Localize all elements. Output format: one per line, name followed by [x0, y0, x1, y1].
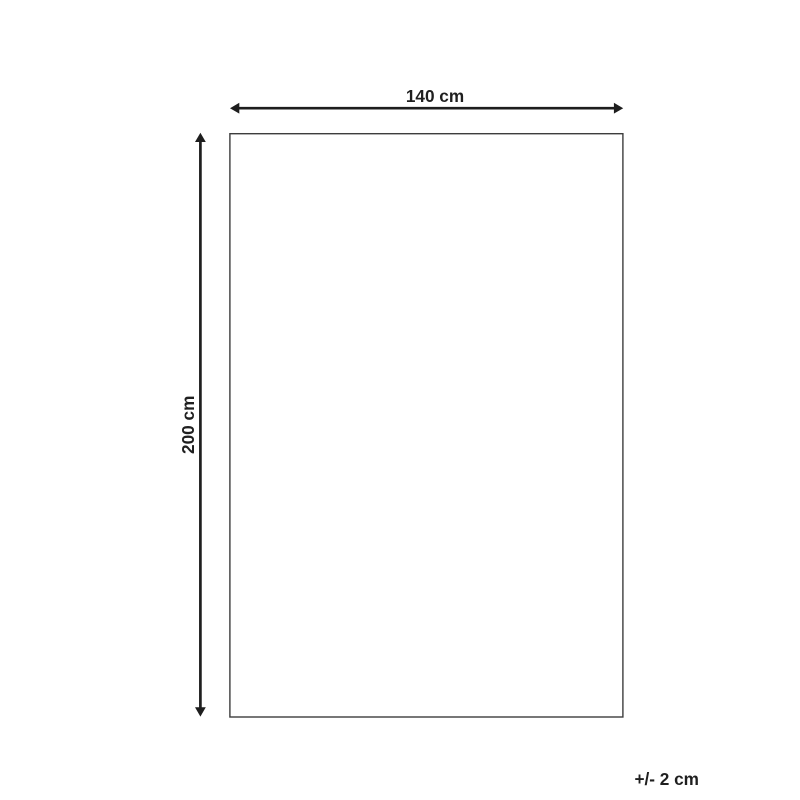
- svg-text:200 cm: 200 cm: [178, 396, 198, 454]
- svg-text:+/- 2 cm: +/- 2 cm: [634, 769, 699, 789]
- svg-text:140 cm: 140 cm: [406, 86, 464, 106]
